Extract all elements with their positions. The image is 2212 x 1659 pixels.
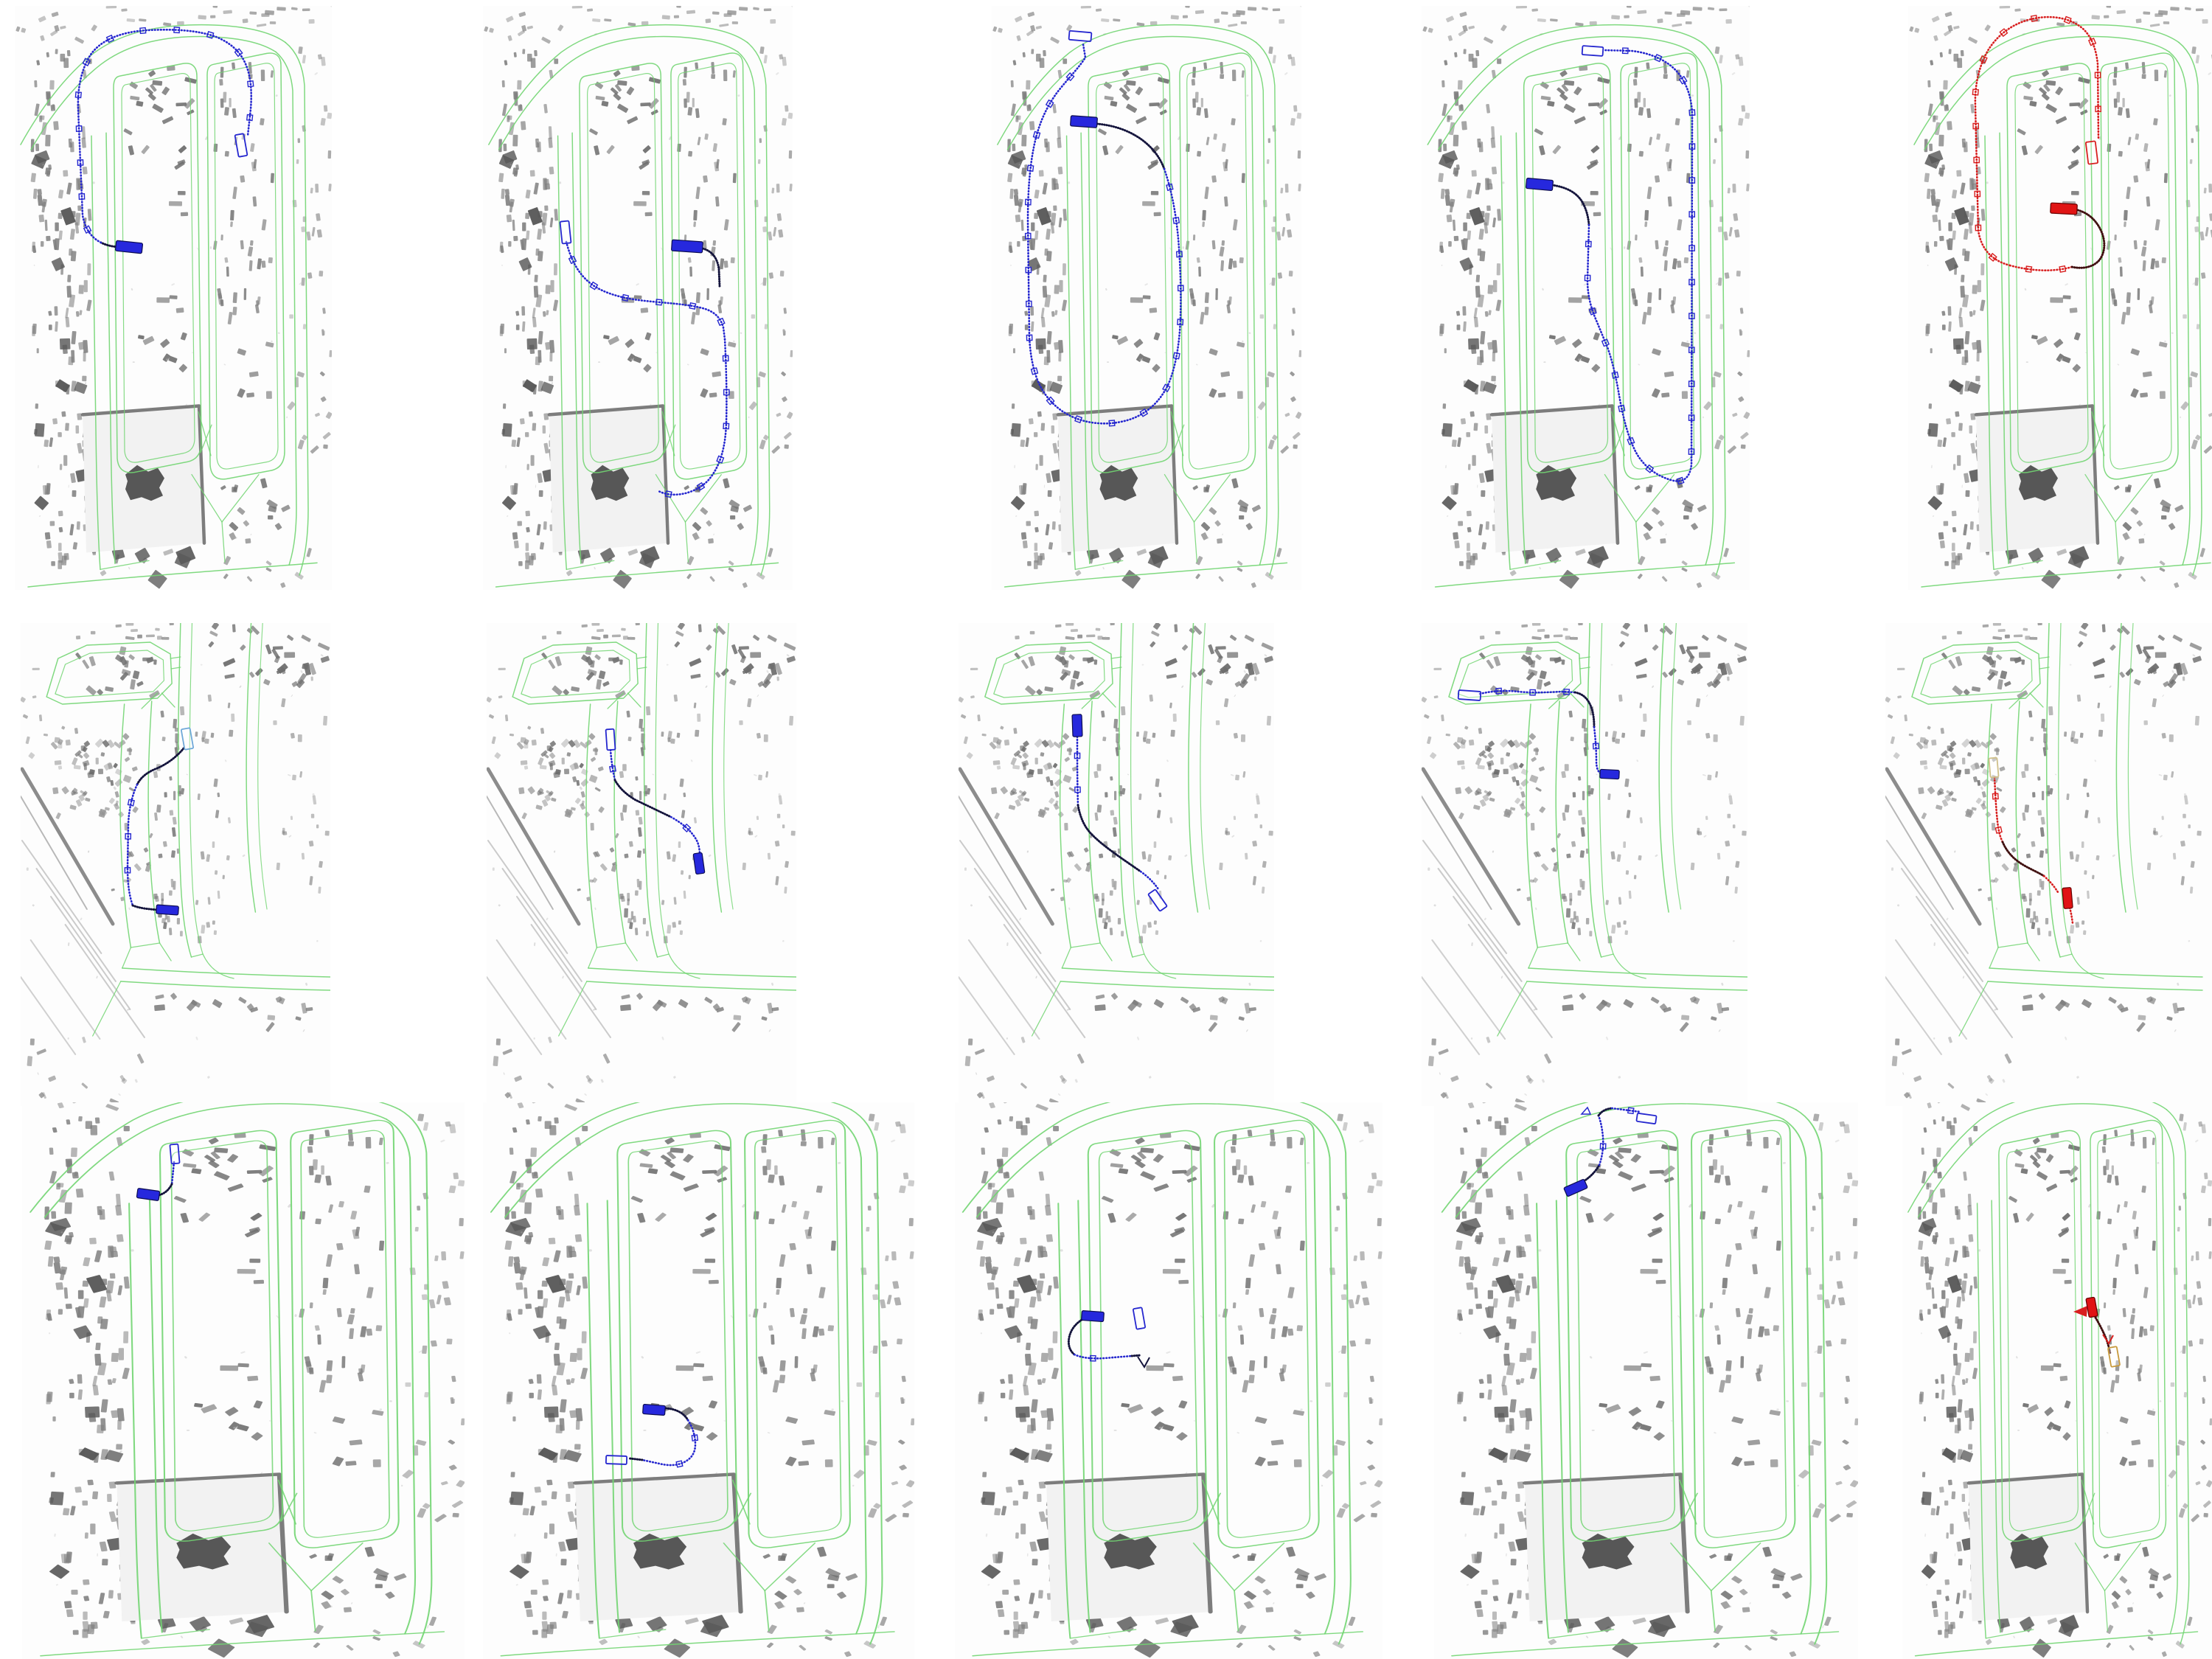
map-panel-r2c3 — [959, 623, 1274, 1106]
building-footprint — [748, 1314, 751, 1317]
building-footprint — [1005, 1172, 1009, 1177]
building-footprint — [521, 760, 528, 765]
building-footprint — [542, 1612, 546, 1620]
building-footprint — [1018, 1624, 1025, 1634]
building-footprint — [635, 776, 638, 781]
building-footprint — [1371, 1172, 1377, 1179]
building-footprint — [219, 79, 223, 86]
building-footprint — [1037, 411, 1042, 417]
building-footprint — [1502, 181, 1504, 184]
building-footprint — [590, 660, 595, 667]
building-footprint — [83, 1612, 87, 1620]
goal-box — [606, 729, 616, 751]
building-footprint — [1633, 79, 1638, 86]
building-footprint — [1957, 455, 1961, 465]
building-footprint — [542, 636, 546, 640]
building-footprint — [705, 18, 711, 23]
building-footprint — [1930, 189, 1935, 195]
building-footprint — [292, 774, 296, 780]
building-footprint — [169, 776, 172, 781]
building-footprint — [1053, 179, 1058, 185]
building-footprint — [1025, 324, 1029, 330]
building-footprint — [1040, 1410, 1048, 1418]
building-footprint — [518, 561, 523, 566]
vehicle-box — [115, 240, 142, 254]
building-footprint — [759, 138, 762, 143]
building-footprint — [1034, 543, 1037, 551]
building-footprint — [1203, 487, 1208, 492]
building-footprint — [995, 1601, 1003, 1608]
building-footprint — [636, 810, 640, 815]
building-footprint — [1082, 658, 1093, 661]
building-footprint — [1029, 121, 1034, 130]
building-footprint — [321, 1166, 324, 1175]
building-footprint — [76, 311, 80, 317]
building-footprint — [643, 1430, 646, 1431]
building-footprint — [1201, 98, 1203, 108]
building-footprint — [1268, 138, 1271, 143]
building-footprint — [441, 1251, 446, 1260]
building-footprint — [542, 1579, 549, 1585]
building-footprint — [69, 248, 72, 256]
building-footprint — [1220, 74, 1224, 79]
building-footprint — [1110, 623, 1114, 625]
building-footprint — [55, 223, 58, 232]
building-footprint — [766, 1159, 771, 1170]
building-footprint — [1457, 760, 1464, 765]
building-footprint — [664, 793, 667, 800]
building-footprint — [678, 841, 681, 848]
building-footprint — [2160, 391, 2166, 399]
building-footprint — [44, 439, 49, 447]
building-footprint — [512, 532, 518, 540]
building-footprint — [1267, 1461, 1279, 1466]
building-footprint — [35, 423, 45, 437]
building-footprint — [50, 521, 55, 526]
building-footprint — [61, 411, 66, 417]
building-footprint — [313, 1159, 318, 1170]
building-footprint — [727, 10, 737, 15]
building-footprint — [1943, 80, 1947, 90]
building-footprint — [1067, 748, 1072, 752]
building-footprint — [498, 668, 506, 670]
building-footprint — [709, 392, 717, 397]
building-footprint — [2014, 634, 2023, 637]
building-footprint — [1978, 280, 1981, 292]
map-panel-svg-r1c3 — [992, 6, 1301, 590]
building-footprint — [708, 538, 714, 543]
building-footprint — [2183, 814, 2186, 818]
building-footprint — [229, 730, 233, 737]
building-footprint — [1289, 271, 1293, 276]
map-panel-svg-r2c5 — [1885, 623, 2212, 1106]
building-footprint — [1586, 849, 1589, 854]
building-footprint — [325, 1555, 333, 1561]
building-footprint — [1040, 58, 1045, 69]
building-footprint — [37, 348, 39, 353]
building-footprint — [61, 555, 66, 565]
building-footprint — [2197, 831, 2201, 836]
building-footprint — [46, 540, 52, 549]
building-footprint — [514, 540, 519, 549]
building-footprint — [1448, 241, 1452, 247]
building-footprint — [422, 1294, 428, 1300]
building-footprint — [643, 849, 645, 854]
building-footprint — [226, 855, 230, 860]
building-footprint — [2048, 706, 2053, 715]
building-footprint — [30, 1038, 35, 1045]
building-footprint — [1015, 1532, 1019, 1538]
building-footprint — [1466, 432, 1470, 437]
building-footprint — [502, 423, 512, 437]
building-footprint — [1944, 561, 1949, 566]
building-footprint — [173, 881, 175, 890]
building-footprint — [1198, 267, 1201, 277]
building-footprint — [1469, 740, 1475, 745]
building-footprint — [1641, 267, 1644, 277]
building-footprint — [1013, 348, 1015, 353]
vehicle-box — [1071, 116, 1098, 128]
building-footprint — [1927, 189, 1931, 199]
building-footprint — [117, 1420, 122, 1430]
building-footprint — [763, 1302, 767, 1308]
building-footprint — [73, 1630, 79, 1635]
building-footprint — [187, 1430, 189, 1431]
building-footprint — [1550, 658, 1560, 661]
building-footprint — [1693, 7, 1703, 10]
building-footprint — [530, 170, 535, 177]
building-footprint — [282, 830, 284, 835]
building-footprint — [739, 7, 748, 10]
building-footprint — [84, 763, 87, 771]
building-footprint — [323, 1289, 327, 1295]
building-footprint — [535, 248, 539, 256]
building-footprint — [246, 392, 254, 397]
building-footprint — [538, 1116, 542, 1121]
building-footprint — [2114, 299, 2118, 306]
building-footprint — [1170, 730, 1175, 737]
building-footprint — [1121, 931, 1124, 936]
building-footprint — [1046, 1444, 1052, 1450]
building-footprint — [82, 1500, 88, 1506]
building-footprint — [662, 15, 670, 19]
building-footprint — [1590, 191, 1599, 195]
building-footprint — [178, 191, 186, 195]
building-footprint — [1110, 776, 1113, 781]
building-footprint — [544, 1532, 548, 1538]
building-footprint — [2164, 173, 2168, 184]
building-footprint — [1742, 831, 1747, 836]
building-footprint — [1947, 121, 1952, 130]
building-footprint — [1002, 1590, 1009, 1595]
building-footprint — [1453, 167, 1458, 175]
building-footprint — [102, 1559, 108, 1565]
building-footprint — [524, 1601, 531, 1608]
building-footprint — [874, 1392, 879, 1397]
building-footprint — [751, 314, 755, 319]
building-footprint — [612, 634, 621, 637]
building-footprint — [458, 1180, 465, 1186]
building-footprint — [1197, 151, 1201, 157]
building-footprint — [1463, 238, 1468, 250]
building-footprint — [1222, 1211, 1228, 1220]
building-footprint — [2102, 624, 2106, 632]
building-footprint — [521, 306, 525, 316]
building-footprint — [1947, 306, 1951, 316]
building-footprint — [229, 98, 231, 108]
building-footprint — [1441, 265, 1443, 266]
building-footprint — [373, 1459, 381, 1467]
building-footprint — [1948, 223, 1952, 232]
building-footprint — [177, 849, 179, 854]
building-footprint — [2000, 6, 2011, 9]
building-footprint — [1627, 144, 1632, 152]
building-footprint — [350, 1308, 355, 1314]
building-footprint — [520, 418, 525, 424]
building-footprint — [550, 763, 553, 771]
building-footprint — [560, 1559, 566, 1565]
building-footprint — [510, 1492, 524, 1506]
building-footprint — [97, 1316, 102, 1324]
building-footprint — [1459, 561, 1464, 566]
building-footprint — [1644, 98, 1646, 108]
building-footprint — [146, 634, 155, 637]
building-footprint — [1665, 240, 1669, 246]
building-footprint — [2124, 210, 2128, 220]
building-footprint — [83, 352, 86, 362]
building-footprint — [538, 1290, 543, 1299]
map-background — [487, 623, 796, 1106]
building-footprint — [1235, 774, 1239, 780]
building-footprint — [507, 116, 509, 122]
building-footprint — [45, 167, 51, 175]
building-footprint — [544, 179, 549, 185]
building-footprint — [2170, 7, 2180, 10]
goal-box — [1989, 758, 1998, 778]
building-footprint — [693, 210, 698, 220]
building-footprint — [982, 1472, 987, 1477]
building-footprint — [49, 1332, 50, 1334]
building-footprint — [689, 267, 692, 277]
building-footprint — [254, 1280, 264, 1284]
building-footprint — [1186, 144, 1190, 152]
building-footprint — [677, 144, 681, 152]
building-footprint — [545, 342, 551, 350]
building-footprint — [58, 432, 62, 437]
building-footprint — [1452, 439, 1457, 447]
building-footprint — [780, 271, 785, 276]
building-footprint — [981, 1492, 995, 1506]
building-footprint — [446, 1338, 452, 1344]
building-footprint — [677, 733, 681, 738]
building-footprint — [1952, 511, 1957, 517]
building-footprint — [1949, 49, 1952, 54]
building-footprint — [1487, 342, 1493, 350]
building-footprint — [556, 1316, 561, 1324]
building-footprint — [1938, 135, 1944, 147]
building-footprint — [1113, 719, 1118, 728]
goal-box — [1069, 31, 1092, 42]
building-footprint — [827, 1584, 835, 1588]
building-footprint — [2073, 738, 2079, 743]
building-footprint — [1646, 487, 1652, 492]
building-footprint — [1732, 184, 1736, 192]
building-footprint — [244, 288, 247, 300]
building-footprint — [1626, 870, 1629, 874]
goal-box — [2086, 141, 2098, 164]
building-footprint — [1950, 763, 1953, 771]
building-footprint — [1927, 265, 1929, 266]
building-footprint — [1027, 561, 1032, 566]
building-footprint — [641, 307, 649, 313]
building-footprint — [55, 760, 62, 765]
building-footprint — [250, 240, 254, 246]
building-footprint — [994, 1508, 1001, 1515]
building-footprint — [1071, 629, 1078, 632]
building-footprint — [568, 1273, 574, 1279]
building-footprint — [1745, 113, 1750, 119]
building-footprint — [2033, 911, 2036, 920]
map-background — [959, 623, 1274, 1106]
building-footprint — [230, 210, 234, 220]
building-footprint — [535, 356, 540, 365]
building-footprint — [2122, 98, 2124, 108]
building-footprint — [513, 483, 518, 494]
building-footprint — [66, 740, 71, 745]
building-footprint — [1942, 636, 1947, 640]
building-footprint — [78, 1116, 83, 1121]
building-footprint — [1705, 314, 1710, 319]
building-footprint — [1663, 74, 1668, 79]
goal-box — [1458, 690, 1481, 700]
building-footprint — [1697, 830, 1700, 835]
building-footprint — [39, 116, 42, 122]
building-footprint — [2084, 870, 2087, 874]
building-footprint — [1249, 1360, 1256, 1371]
building-footprint — [273, 646, 283, 650]
building-footprint — [64, 1203, 72, 1214]
building-footprint — [319, 271, 323, 276]
building-footprint — [504, 348, 507, 353]
building-footprint — [295, 1314, 297, 1317]
building-footprint — [1460, 104, 1463, 109]
building-footprint — [1554, 634, 1563, 637]
building-footprint — [661, 731, 664, 737]
building-footprint — [1020, 439, 1025, 447]
building-footprint — [818, 1137, 824, 1149]
building-footprint — [1195, 92, 1199, 103]
building-footprint — [1009, 189, 1013, 199]
building-footprint — [1472, 58, 1478, 69]
building-footprint — [1271, 226, 1276, 232]
building-footprint — [1225, 830, 1228, 835]
building-footprint — [801, 1141, 807, 1147]
building-footprint — [71, 1590, 77, 1595]
building-footprint — [220, 234, 223, 240]
building-footprint — [53, 121, 59, 130]
map-panel-r3c3 — [955, 1102, 1382, 1659]
building-footprint — [1647, 307, 1652, 316]
building-footprint — [827, 1325, 834, 1331]
building-footprint — [213, 144, 218, 152]
building-footprint — [1216, 720, 1220, 725]
building-footprint — [1454, 236, 1459, 241]
building-footprint — [724, 260, 728, 268]
building-footprint — [116, 1444, 122, 1450]
building-footprint — [1634, 299, 1638, 306]
building-footprint — [97, 1425, 104, 1433]
building-footprint — [762, 226, 767, 232]
building-footprint — [1470, 411, 1475, 417]
building-footprint — [1480, 636, 1485, 640]
building-footprint — [1707, 774, 1711, 780]
building-footprint — [1081, 6, 1091, 9]
building-footprint — [711, 74, 715, 79]
building-footprint — [220, 299, 224, 306]
building-footprint — [591, 623, 599, 626]
building-footprint — [524, 765, 529, 770]
building-footprint — [2143, 646, 2154, 650]
building-footprint — [1102, 899, 1105, 906]
building-footprint — [683, 79, 686, 86]
building-footprint — [78, 1290, 84, 1299]
building-footprint — [575, 1234, 582, 1242]
building-footprint — [1986, 181, 1989, 184]
building-footprint — [1038, 1590, 1043, 1598]
building-footprint — [500, 324, 504, 334]
building-footprint — [1492, 352, 1495, 362]
building-footprint — [2050, 297, 2063, 303]
building-footprint — [2186, 200, 2191, 207]
building-footprint — [1939, 483, 1944, 494]
building-footprint — [1239, 515, 1244, 519]
building-footprint — [1454, 540, 1459, 549]
building-footprint — [622, 764, 627, 771]
building-footprint — [1937, 439, 1942, 447]
building-footprint — [1441, 189, 1445, 199]
building-footprint — [1624, 931, 1628, 935]
building-footprint — [1739, 716, 1744, 726]
building-footprint — [1163, 1269, 1180, 1274]
building-footprint — [1565, 804, 1570, 813]
building-footprint — [1971, 179, 1976, 185]
building-footprint — [531, 455, 535, 465]
building-footprint — [1010, 265, 1012, 266]
building-footprint — [1927, 80, 1930, 88]
building-footprint — [535, 1189, 543, 1197]
building-footprint — [693, 221, 696, 227]
building-footprint — [1486, 521, 1489, 529]
building-footprint — [1627, 6, 1632, 8]
building-footprint — [692, 1269, 711, 1274]
building-footprint — [1961, 356, 1966, 365]
building-footprint — [1686, 21, 1692, 24]
building-footprint — [1154, 920, 1157, 925]
building-footprint — [696, 292, 700, 303]
building-footprint — [2138, 1015, 2146, 1020]
building-footprint — [293, 200, 297, 207]
building-footprint — [37, 189, 42, 195]
building-footprint — [2037, 623, 2042, 625]
building-footprint — [1152, 733, 1155, 738]
map-panel-svg-r1c5 — [1908, 6, 2212, 590]
building-footprint — [1294, 1459, 1302, 1467]
building-footprint — [1273, 324, 1277, 329]
building-footprint — [503, 144, 507, 151]
building-footprint — [1154, 212, 1161, 217]
building-footprint — [521, 121, 526, 130]
building-footprint — [124, 660, 129, 667]
